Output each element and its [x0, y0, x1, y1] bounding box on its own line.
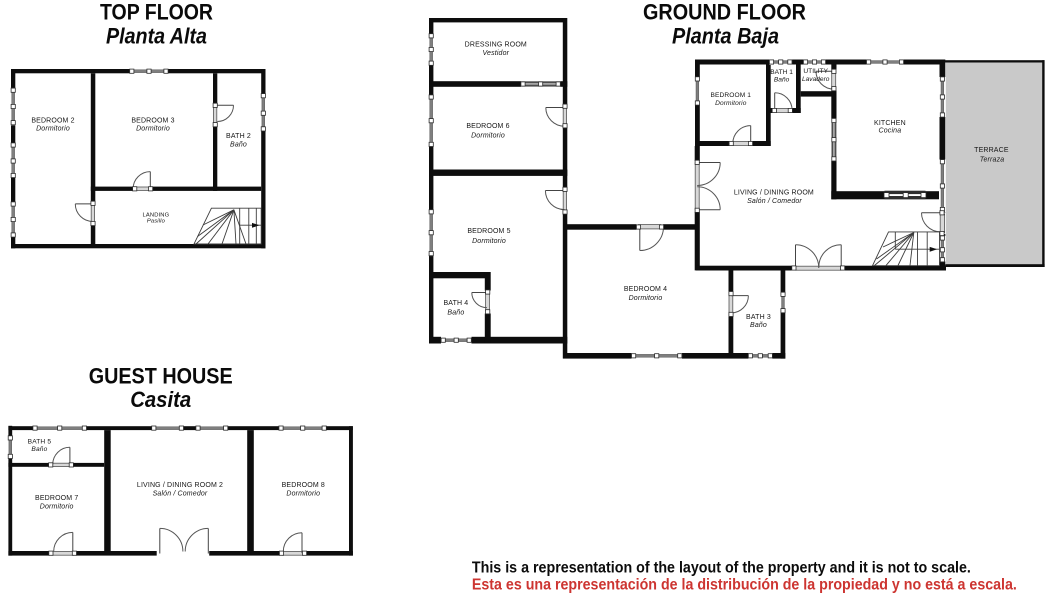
svg-text:BEDROOM 8: BEDROOM 8	[282, 482, 325, 489]
svg-text:BEDROOM 4: BEDROOM 4	[624, 286, 667, 293]
svg-text:BEDROOM 7: BEDROOM 7	[35, 495, 78, 502]
svg-text:TERRACE: TERRACE	[974, 147, 1009, 154]
svg-text:BEDROOM 2: BEDROOM 2	[31, 117, 74, 124]
svg-text:Dormitorio: Dormitorio	[40, 504, 74, 511]
svg-text:Lavadero: Lavadero	[802, 76, 830, 83]
svg-text:This is a representation of th: This is a representation of the layout o…	[472, 559, 971, 576]
svg-text:BEDROOM 1: BEDROOM 1	[711, 92, 752, 99]
svg-text:Baño: Baño	[774, 77, 790, 84]
svg-text:Dormitorio: Dormitorio	[472, 238, 506, 245]
svg-text:BATH 1: BATH 1	[770, 69, 793, 76]
svg-text:BEDROOM 6: BEDROOM 6	[466, 123, 509, 130]
svg-text:Cocina: Cocina	[879, 128, 902, 135]
svg-text:UTILITY: UTILITY	[803, 68, 828, 75]
svg-text:Baño: Baño	[447, 310, 464, 317]
svg-text:BATH 5: BATH 5	[28, 439, 52, 446]
svg-text:LIVING / DINING ROOM: LIVING / DINING ROOM	[734, 190, 814, 197]
svg-text:Casita: Casita	[130, 387, 191, 412]
svg-text:GROUND FLOOR: GROUND FLOOR	[643, 0, 806, 25]
svg-text:Dormitorio: Dormitorio	[136, 126, 170, 133]
svg-text:Terraza: Terraza	[980, 156, 1005, 163]
svg-text:BATH 2: BATH 2	[226, 133, 251, 140]
svg-text:LIVING / DINING ROOM 2: LIVING / DINING ROOM 2	[137, 482, 223, 489]
svg-text:TOP FLOOR: TOP FLOOR	[100, 0, 213, 25]
svg-text:Salón / Comedor: Salón / Comedor	[153, 491, 208, 498]
svg-text:KITCHEN: KITCHEN	[874, 120, 906, 127]
svg-text:DRESSING ROOM: DRESSING ROOM	[465, 41, 527, 48]
svg-text:Dormitorio: Dormitorio	[36, 126, 70, 133]
svg-text:Salón / Comedor: Salón / Comedor	[747, 198, 802, 205]
svg-text:Baño: Baño	[750, 322, 767, 329]
svg-text:Dormitorio: Dormitorio	[715, 100, 747, 107]
svg-text:BEDROOM 5: BEDROOM 5	[467, 228, 510, 235]
svg-text:GUEST HOUSE: GUEST HOUSE	[89, 364, 233, 389]
svg-text:Pasillo: Pasillo	[147, 218, 166, 224]
svg-text:Dormitorio: Dormitorio	[286, 491, 320, 498]
svg-text:Esta es una representación de: Esta es una representación de la distrib…	[472, 577, 1017, 594]
svg-text:Planta Baja: Planta Baja	[672, 24, 779, 49]
svg-text:Planta Alta: Planta Alta	[106, 24, 207, 49]
svg-text:Baño: Baño	[230, 141, 247, 148]
svg-text:Baño: Baño	[31, 446, 47, 453]
svg-text:Dormitorio: Dormitorio	[629, 295, 663, 302]
svg-text:BEDROOM 3: BEDROOM 3	[131, 117, 174, 124]
svg-text:BATH 4: BATH 4	[443, 300, 468, 307]
svg-text:Dormitorio: Dormitorio	[471, 132, 505, 139]
svg-text:Vestidor: Vestidor	[482, 50, 509, 57]
svg-text:BATH 3: BATH 3	[746, 314, 771, 321]
